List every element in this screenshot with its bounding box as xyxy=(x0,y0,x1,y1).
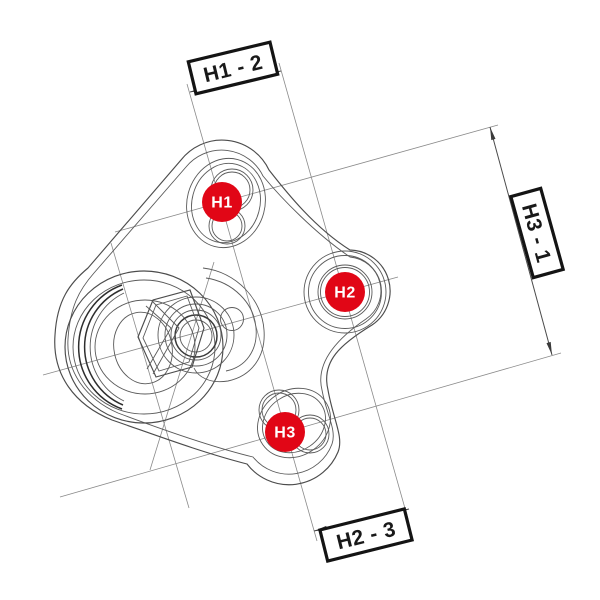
diagram-canvas: H1 - 2 H3 - 1 H2 - 3 H1 H2 H3 xyxy=(0,0,600,600)
ball-joint-technical-drawing: H1 - 2 H3 - 1 H2 - 3 H1 H2 H3 xyxy=(0,0,600,600)
marker-h2[interactable]: H2 xyxy=(325,272,365,312)
extension-line-h1-right xyxy=(115,125,498,232)
construction-lines xyxy=(43,63,561,541)
extension-line-h3-right xyxy=(60,353,561,497)
dimension-right-arrow-top xyxy=(490,127,496,140)
dimension-top-label: H1 - 2 xyxy=(188,42,277,94)
dimension-right: H3 - 1 xyxy=(490,127,563,355)
marker-h1[interactable]: H1 xyxy=(202,182,242,222)
marker-h1-text: H1 xyxy=(211,195,232,212)
marker-h2-text: H2 xyxy=(334,285,355,302)
marker-h3[interactable]: H3 xyxy=(265,412,305,452)
dimension-bottom: H2 - 3 xyxy=(314,509,412,561)
boss-tab-circle xyxy=(221,308,244,331)
marker-h3-text: H3 xyxy=(274,425,295,442)
dimension-right-arrow-bottom xyxy=(547,342,553,355)
dimension-bottom-label: H2 - 3 xyxy=(320,509,412,561)
flange-edge-line xyxy=(150,262,214,470)
dimension-top: H1 - 2 xyxy=(188,42,281,94)
